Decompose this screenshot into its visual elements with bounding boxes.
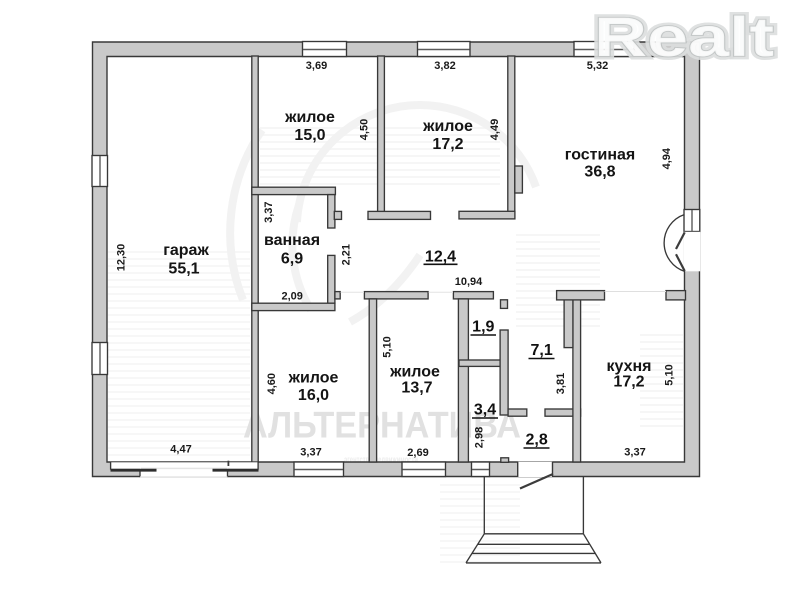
- svg-text:12,4: 12,4: [425, 249, 456, 266]
- svg-text:10,94: 10,94: [455, 276, 483, 288]
- svg-text:3,4: 3,4: [474, 402, 496, 419]
- svg-text:4,60: 4,60: [266, 373, 278, 394]
- svg-text:3,37: 3,37: [624, 447, 645, 459]
- svg-text:2,09: 2,09: [281, 291, 302, 303]
- svg-text:2,21: 2,21: [341, 244, 353, 265]
- svg-text:16,0: 16,0: [298, 387, 329, 404]
- svg-text:кухня: кухня: [607, 358, 652, 375]
- svg-text:7,1: 7,1: [530, 342, 552, 359]
- svg-text:1,9: 1,9: [472, 319, 494, 336]
- svg-text:2,98: 2,98: [473, 427, 485, 448]
- svg-text:жилое: жилое: [389, 364, 440, 381]
- svg-text:5,10: 5,10: [664, 364, 676, 385]
- svg-text:Realt: Realt: [594, 5, 774, 68]
- svg-text:6,9: 6,9: [281, 251, 303, 268]
- svg-text:17,2: 17,2: [613, 374, 644, 391]
- svg-text:13,7: 13,7: [401, 380, 432, 397]
- svg-text:17,2: 17,2: [432, 136, 463, 153]
- svg-text:4,47: 4,47: [170, 444, 191, 456]
- svg-text:жилое: жилое: [288, 370, 339, 387]
- svg-text:3,82: 3,82: [434, 60, 455, 72]
- svg-text:жилое: жилое: [422, 118, 473, 135]
- svg-text:ванная: ванная: [264, 232, 320, 249]
- svg-text:3,37: 3,37: [263, 201, 275, 222]
- svg-text:15,0: 15,0: [294, 127, 325, 144]
- svg-text:4,49: 4,49: [489, 119, 501, 140]
- svg-text:гостиная: гостиная: [565, 147, 635, 164]
- svg-text:гараж: гараж: [163, 242, 209, 259]
- svg-text:жилое: жилое: [284, 109, 335, 126]
- svg-text:55,1: 55,1: [168, 261, 199, 278]
- svg-text:4,94: 4,94: [661, 147, 673, 169]
- svg-text:2,69: 2,69: [407, 447, 428, 459]
- svg-text:4,50: 4,50: [359, 119, 371, 140]
- svg-text:5,10: 5,10: [382, 336, 394, 357]
- svg-text:36,8: 36,8: [584, 164, 615, 181]
- svg-text:3,69: 3,69: [306, 60, 327, 72]
- svg-text:3,37: 3,37: [300, 447, 321, 459]
- svg-text:2,8: 2,8: [525, 432, 547, 449]
- svg-text:12,30: 12,30: [116, 244, 128, 272]
- svg-text:3,81: 3,81: [555, 373, 567, 394]
